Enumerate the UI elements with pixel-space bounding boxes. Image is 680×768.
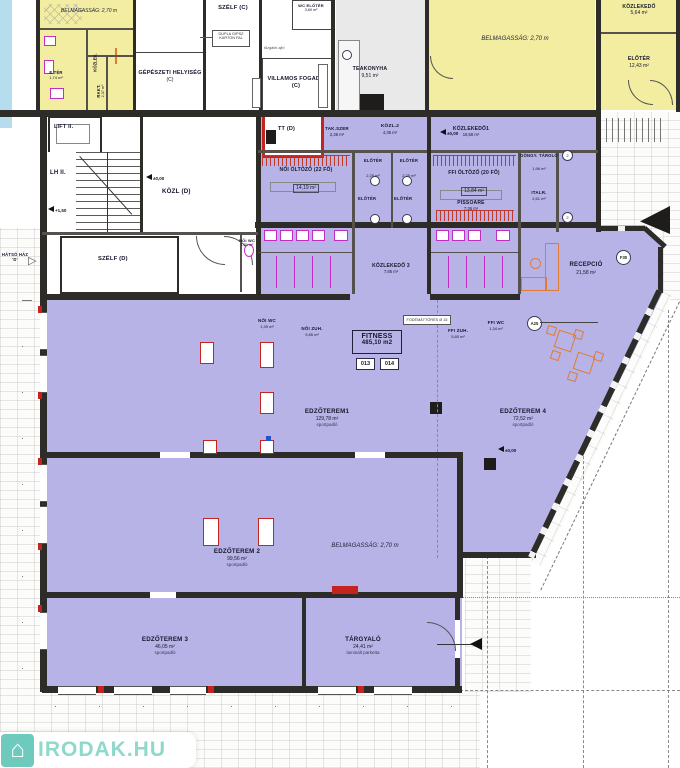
ref-circle: [370, 214, 380, 224]
fitness-title-box: FITNESS 485,10 m2: [352, 330, 402, 354]
window-frame-red: [38, 306, 42, 313]
level-marker-icon: [48, 206, 54, 212]
room-label-pissoare: PISSOARE 7,36 m²: [436, 200, 506, 212]
room-label-ffi-zuh: FFI ZUH. 5,80 m²: [438, 328, 478, 339]
stove-icon: [360, 94, 384, 110]
house-icon: ⌂: [1, 734, 34, 767]
room-label-noi-oltozo: NŐI ÖLTÖZŐ (22 FŐ) 14,19 m²: [260, 167, 352, 195]
wall: [256, 112, 261, 298]
wall: [430, 294, 520, 300]
toilet-icon: [496, 230, 510, 241]
water-strip: [0, 0, 12, 128]
room-label-edzoterem1: EDZŐTEREM1 129,78 m² sportpadló: [282, 408, 372, 428]
window-frame-red: [208, 686, 214, 693]
window: [40, 612, 47, 650]
sink-icon: [452, 230, 465, 241]
room-label-lift: LIFT II.: [54, 124, 73, 130]
level-marker: ±0,00: [440, 129, 458, 136]
shower-stall: [484, 256, 485, 288]
room-label-gepeszeti: GÉPÉSZETI HELYISÉG (C): [138, 70, 202, 83]
watermark-text: IRODAK.HU: [38, 738, 166, 762]
coat-hooks: [262, 155, 350, 166]
wall: [42, 294, 350, 300]
room-szelf-d: [60, 236, 179, 294]
ref-circle: [370, 176, 380, 186]
wall: [431, 252, 519, 253]
marker-a25: A25: [527, 316, 542, 331]
wall: [518, 150, 521, 294]
window: [40, 355, 47, 393]
window: [40, 312, 47, 350]
dimension-line: [22, 300, 23, 688]
marker-f30: F30: [616, 250, 631, 265]
rear-entrance-label: HÁTSÓ HÁZ 'D': [0, 252, 30, 263]
gym-equipment-red: [260, 392, 274, 414]
level-marker: ±0,00: [498, 446, 516, 453]
room-label-eloter-d: ELŐTÉR: [394, 196, 412, 201]
room-label-kozlek: KÖZLEK.: [93, 48, 98, 78]
shower-stall: [312, 256, 313, 288]
room-label-kozlekedo-tr: KÖZLEKEDŐ 5,64 m²: [606, 4, 672, 17]
window: [58, 686, 96, 695]
room-label-ffi-oltozo: FFI ÖLTÖZŐ (20 FŐ) 13,84 m²: [432, 170, 516, 198]
room-label-eloter-tr: ELŐTÉR 12,43 m²: [606, 56, 672, 69]
floor-plan: BELMAGASSÁG: 2,70 m BELMAGASSÁG: 2,70 m …: [0, 0, 680, 768]
wall: [427, 112, 431, 294]
sink-icon: [312, 230, 325, 241]
grid-line: [668, 310, 669, 768]
toilet-icon: [50, 88, 64, 99]
room-big-yellow: [429, 0, 595, 112]
level-marker-icon: [440, 129, 446, 135]
ref-circle: [402, 176, 412, 186]
ceiling-height-label: BELMAGASSÁG: 2,70 m: [455, 36, 575, 42]
gym-equipment-red: [200, 342, 214, 364]
window-frame-red: [98, 686, 104, 693]
sink-icon: [264, 230, 277, 241]
paving-corner: [663, 230, 680, 300]
wall: [106, 55, 108, 112]
room-number-014: 014: [380, 358, 399, 370]
room-label-eter: E.TÉR 1,74 m²: [42, 70, 70, 80]
window: [374, 686, 412, 695]
shower-stall: [330, 256, 331, 288]
room-label-edzoterem2: EDZŐTEREM 2 99,56 m² sportpadló: [192, 548, 282, 568]
gym-equipment-red: [203, 518, 219, 546]
door-arc: [196, 236, 225, 265]
wall: [601, 32, 676, 34]
dimension-tick: [22, 300, 32, 301]
room-label-recepcio: RECEPCIÓ 21,58 m²: [556, 262, 616, 276]
gym-equipment-red: [260, 440, 274, 454]
door-opening: [160, 452, 190, 458]
room-label-edzoterem3: EDZŐTEREM 3 46,05 m² sportpadló: [120, 636, 210, 656]
room-label-targyalo: TÁRGYALÓ 24,41 m² laminált parketta: [318, 636, 408, 656]
wall: [352, 150, 355, 294]
entrance-arrow-icon: [470, 638, 482, 650]
room-label-tak-szer: TAK.SZER 2,36 m²: [318, 126, 356, 137]
electrical-cabinet: [318, 64, 328, 108]
wall: [457, 452, 463, 598]
grid-line: [487, 556, 488, 768]
wall: [302, 598, 306, 690]
ceiling-height-label: BELMAGASSÁG: 2,70 m: [305, 543, 425, 549]
room-label-eloter-b: ELŐTÉR 2,25 m²: [392, 158, 426, 178]
room-label-gongy: GÖNGY. TÁROLÓ 1,96 m²: [520, 153, 558, 171]
room-label-ffi-wc: FFI WC 1,34 m²: [478, 320, 514, 331]
reception-desk: [521, 277, 547, 291]
grid-line: [460, 690, 680, 691]
wall: [42, 232, 258, 235]
shower-stall: [448, 256, 449, 288]
ceiling-height-label: BELMAGASSÁG: 2,70 m: [44, 8, 134, 14]
room-label-kozl-d: KÖZL (D): [162, 188, 191, 195]
stair-divider: [107, 152, 108, 232]
blue-marker: [266, 436, 271, 441]
room-label-wc-eloter: WC ELŐTÉR 3,69 m²: [293, 3, 329, 13]
note-leader: [200, 37, 212, 38]
wall: [36, 0, 40, 112]
ref-circle-2: 2: [562, 212, 573, 223]
room-label-lh: LH II.: [50, 170, 66, 176]
sink-icon: [468, 230, 481, 241]
wall: [658, 247, 663, 293]
slab-penetration-note: FÖDÉMÁTTÖRÉS Ø 15: [403, 315, 451, 325]
sink-icon: [280, 230, 293, 241]
room-label-szelf-c: SZÉLF (C): [206, 5, 260, 12]
window-frame-red: [38, 458, 42, 465]
window: [318, 686, 356, 695]
wall: [676, 0, 680, 112]
red-wall-element: [332, 586, 358, 594]
wall: [42, 592, 462, 598]
electrical-cabinet: [252, 78, 261, 108]
level-marker-icon: [146, 174, 152, 180]
exterior-stairs: [606, 118, 664, 142]
fire-door-note: tűzgátló ajtó: [264, 46, 284, 50]
marker-a25-line: [540, 322, 598, 323]
shower-stall: [294, 256, 295, 288]
door-opening: [355, 452, 385, 458]
sink-icon: [342, 50, 352, 60]
room-label-szelf-d: SZÉLF (D): [98, 256, 128, 262]
door-opening: [150, 592, 176, 598]
wall: [140, 112, 143, 232]
wall: [203, 0, 206, 112]
shower-stall: [276, 256, 277, 288]
room-number-013: 013: [356, 358, 375, 370]
room-label-noi-wc: NŐI WC 1,39 m²: [250, 318, 284, 329]
room-label-noi-zuh: NŐI ZUH. 9,85 m²: [292, 326, 332, 337]
dimension-line: [55, 706, 460, 707]
window-wall: [598, 226, 646, 231]
gym-equipment-red: [203, 440, 217, 454]
coat-hooks: [433, 155, 516, 166]
level-marker: ±0,00: [146, 174, 164, 181]
reference-line: [437, 458, 438, 558]
sink-icon: [296, 230, 309, 241]
wall-note: DUPLA GIPSZ KARTON FAL: [212, 30, 250, 47]
gym-equipment-red: [260, 342, 274, 368]
wall: [258, 252, 352, 253]
wall: [133, 0, 136, 112]
window-frame-red: [358, 686, 364, 693]
wall-north: [0, 110, 601, 117]
room-label-teakonyha: TEAKONYHA 9,51 m²: [340, 66, 400, 79]
window-frame-red: [38, 605, 42, 612]
column: [430, 402, 442, 414]
rear-entrance-arrow-icon: ▷: [28, 254, 36, 267]
window: [40, 464, 47, 502]
level-marker-icon: [498, 446, 504, 452]
watermark: ⌂ IRODAK.HU: [0, 732, 196, 768]
shower-stall: [466, 256, 467, 288]
window: [40, 506, 47, 544]
window: [114, 686, 152, 695]
gym-equipment-red: [258, 518, 274, 546]
paving-terrace: [465, 558, 531, 692]
room-label-kozlekedo3: KÖZLEKEDŐ 3 7,85 m²: [358, 263, 424, 275]
column: [484, 458, 496, 470]
urinal-row: [436, 210, 514, 221]
room-label-rakt: RAKT. 2,37 m²: [96, 76, 106, 106]
ref-circle-2: 2: [562, 150, 573, 161]
level-marker: +1,50: [48, 206, 66, 213]
paving-left: [0, 228, 42, 698]
toilet-icon: [44, 36, 56, 46]
toilet-icon: [334, 230, 348, 241]
chair-icon: [530, 258, 541, 269]
wall: [86, 28, 88, 112]
window: [170, 686, 206, 695]
room-label-kozl2: KÖZL.2 4,35 m²: [372, 124, 408, 135]
wall: [462, 552, 536, 558]
shaft-hatch: [44, 4, 82, 24]
wall: [42, 452, 462, 458]
room-label-tt-d: TT (D): [278, 126, 295, 132]
room-label-noi-wc-band: NŐI WC 1,31 m²: [232, 238, 262, 248]
tt-equipment: [266, 130, 276, 144]
paving-edge-line: [460, 597, 680, 598]
room-label-eloter-c: ELŐTÉR: [358, 196, 376, 201]
shower-stall: [502, 256, 503, 288]
window-frame-red: [38, 543, 42, 550]
room-label-edzoterem4: EDZŐTEREM 4 72,52 m² sportpadló: [478, 408, 568, 428]
wall: [425, 0, 429, 112]
wall: [40, 112, 47, 298]
ref-circle: [402, 214, 412, 224]
window-frame-red: [38, 392, 42, 399]
sink-icon: [436, 230, 449, 241]
room-label-italr: ITALR. 2,61 m²: [520, 190, 558, 201]
wall: [331, 0, 335, 112]
door-opening: [455, 620, 460, 658]
